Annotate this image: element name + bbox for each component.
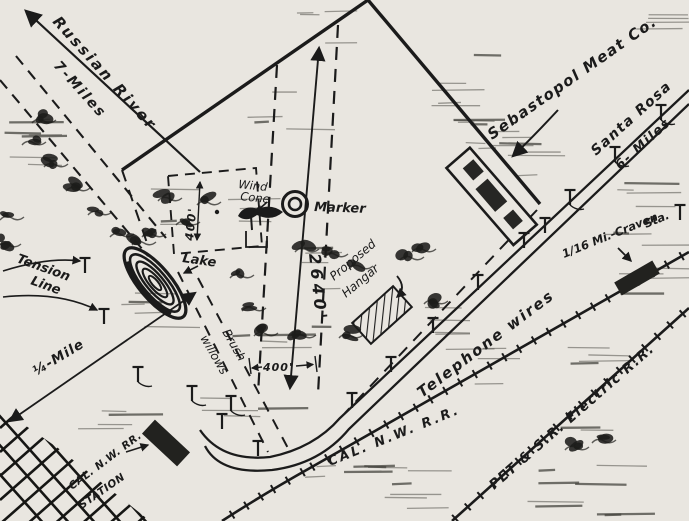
label-runway-width: 400' bbox=[262, 361, 293, 374]
map-canvas: Russian River 7-Miles Sebastopol Meat Co… bbox=[0, 0, 689, 521]
label-marker: Marker bbox=[314, 200, 368, 217]
map-page: Russian River 7-Miles Sebastopol Meat Co… bbox=[0, 0, 689, 521]
